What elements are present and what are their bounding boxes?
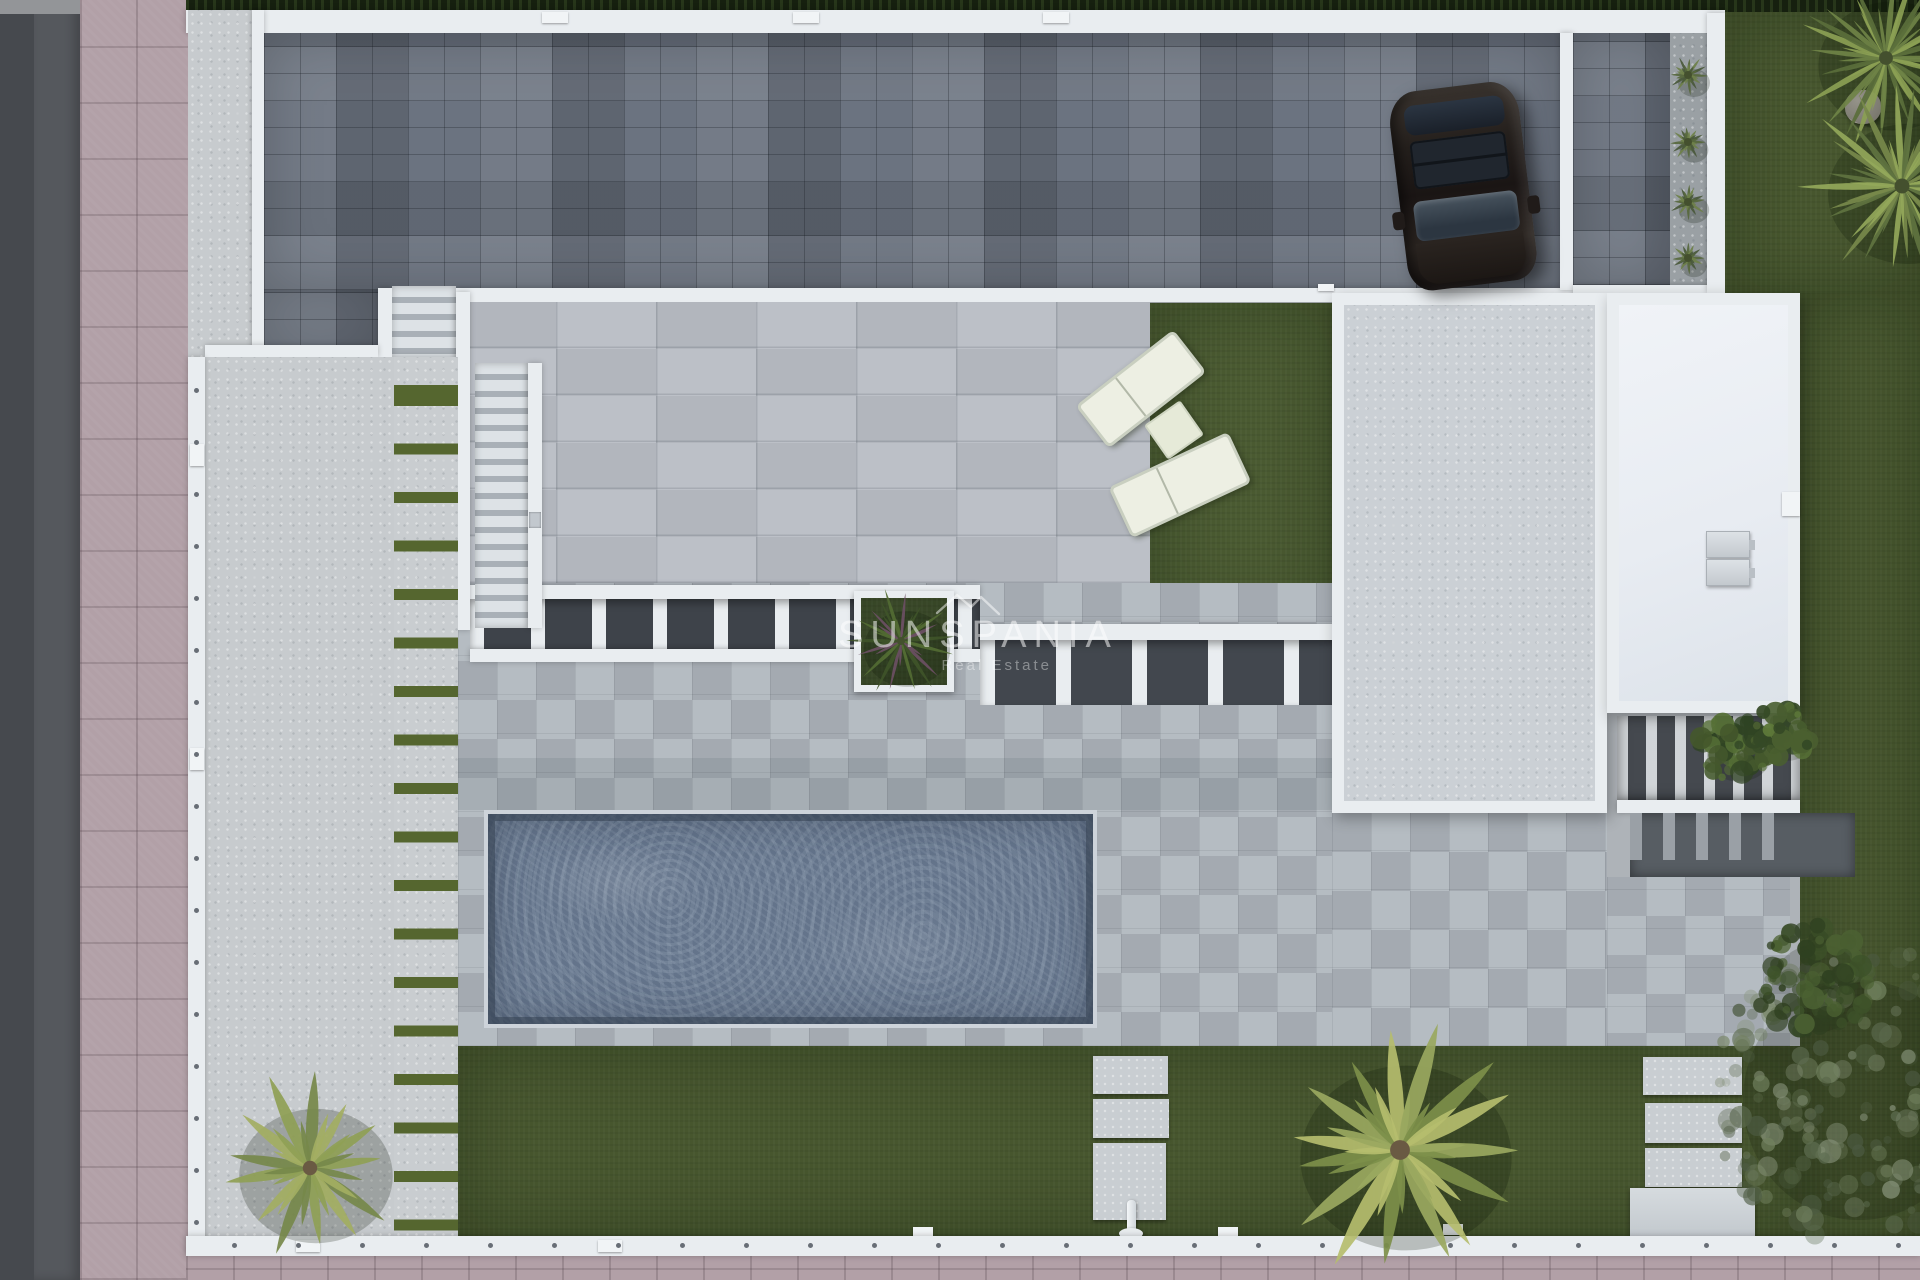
fence-post bbox=[744, 1243, 749, 1248]
fence-post bbox=[872, 1243, 877, 1248]
stairs-handle bbox=[529, 512, 541, 528]
driveway-pavers bbox=[264, 33, 1560, 290]
driveway-trim-left bbox=[205, 345, 378, 357]
stairs-driveway bbox=[392, 286, 456, 357]
pool-deck-right bbox=[1332, 813, 1607, 1046]
road-strip-dark bbox=[0, 0, 34, 1280]
ac-unit-1 bbox=[1706, 531, 1750, 558]
stepping-pad bbox=[1643, 1057, 1742, 1095]
fence-post bbox=[616, 1243, 621, 1248]
terrace-left-wall bbox=[456, 292, 470, 630]
stepping-pad bbox=[1093, 1056, 1168, 1094]
lounger-seam bbox=[1115, 378, 1146, 417]
fence-post bbox=[194, 1064, 199, 1069]
fence-post bbox=[936, 1243, 941, 1248]
stepping-pad bbox=[1645, 1103, 1742, 1143]
fence-post bbox=[1896, 1243, 1901, 1248]
fence-post bbox=[1064, 1243, 1069, 1248]
fence-post bbox=[194, 1012, 199, 1017]
grate-slats-lower bbox=[1630, 813, 1780, 860]
sidewalk-pink-left bbox=[80, 0, 192, 1280]
lawn-right bbox=[1800, 293, 1920, 1236]
boundary-wall-bottom bbox=[186, 1236, 1920, 1256]
fence-post bbox=[194, 648, 199, 653]
planter-strip-gravel bbox=[1670, 33, 1707, 285]
car-mirror-left bbox=[1392, 211, 1406, 230]
wall-step-cap bbox=[1443, 1224, 1463, 1235]
fence-post bbox=[194, 388, 199, 393]
driveway-stairs-wall bbox=[378, 288, 392, 357]
grate-patio-upper bbox=[1617, 716, 1800, 800]
fence-post bbox=[232, 1243, 237, 1248]
aerial-villa-render: SUNSPANIA Real Estate bbox=[0, 0, 1920, 1280]
pergola-planter-grass bbox=[861, 598, 947, 685]
fence-post bbox=[1448, 1243, 1453, 1248]
fence-post bbox=[194, 1220, 199, 1225]
parked-suv bbox=[1386, 79, 1539, 293]
wall-cap bbox=[1318, 284, 1334, 291]
fence-post bbox=[194, 440, 199, 445]
wall-cap bbox=[793, 12, 819, 23]
pergola-right-slats bbox=[980, 640, 1345, 705]
entry-walk-edge bbox=[252, 10, 264, 358]
fence-post bbox=[194, 596, 199, 601]
fence-post bbox=[194, 1168, 199, 1173]
fence-post bbox=[194, 804, 199, 809]
pool-deck-far-right bbox=[1607, 877, 1790, 1046]
fence-post bbox=[1192, 1243, 1197, 1248]
lounger-seam bbox=[1156, 468, 1179, 514]
road-top-edge bbox=[0, 0, 80, 14]
lawn-top-right bbox=[1725, 12, 1920, 293]
fence-post bbox=[552, 1243, 557, 1248]
fence-post bbox=[424, 1243, 429, 1248]
striped-strip-grass-bars bbox=[394, 357, 458, 1240]
wall-cap bbox=[1043, 12, 1069, 23]
garage-roof-surface bbox=[1619, 305, 1788, 701]
fence-post bbox=[194, 752, 199, 757]
fence-post bbox=[1384, 1243, 1389, 1248]
boundary-wall-top bbox=[186, 10, 1725, 33]
car-mirror-right bbox=[1527, 195, 1541, 214]
gate-hinge bbox=[190, 444, 204, 466]
fence-post bbox=[1768, 1243, 1773, 1248]
driveway-pavers-extension bbox=[264, 290, 378, 347]
fence-post bbox=[1832, 1243, 1837, 1248]
fence-post bbox=[194, 1116, 199, 1121]
grate-band bbox=[1617, 800, 1800, 813]
fence-post bbox=[1256, 1243, 1261, 1248]
fence-post bbox=[1128, 1243, 1133, 1248]
entry-walk-concrete bbox=[188, 10, 252, 358]
ac-unit-2 bbox=[1706, 559, 1750, 586]
fence-post bbox=[680, 1243, 685, 1248]
fence-post bbox=[808, 1243, 813, 1248]
stairs-side-wall bbox=[528, 363, 542, 628]
fence-post bbox=[1000, 1243, 1005, 1248]
fence-post bbox=[296, 1243, 301, 1248]
planter-box bbox=[1630, 1188, 1755, 1238]
fence-post bbox=[1320, 1243, 1325, 1248]
fence-post bbox=[488, 1243, 493, 1248]
fence-post bbox=[1704, 1243, 1709, 1248]
fence-post bbox=[360, 1243, 365, 1248]
boundary-wall-right-top bbox=[1707, 13, 1725, 293]
fence-post bbox=[194, 700, 199, 705]
fence-post bbox=[1640, 1243, 1645, 1248]
road-strip bbox=[34, 0, 80, 1280]
sidewalk-pink-bottom bbox=[186, 1254, 1920, 1280]
stepping-pad bbox=[1093, 1099, 1169, 1138]
driveway-divider bbox=[1560, 33, 1573, 290]
fence-post bbox=[1512, 1243, 1517, 1248]
stepping-pad bbox=[1645, 1148, 1742, 1187]
side-patio-pavers bbox=[1573, 33, 1670, 285]
fence-post bbox=[194, 908, 199, 913]
deck-shadow-row bbox=[458, 758, 1332, 810]
fence-post bbox=[194, 492, 199, 497]
fence-post bbox=[194, 960, 199, 965]
fence-post bbox=[194, 856, 199, 861]
fence-post bbox=[194, 544, 199, 549]
garden-rock bbox=[1845, 90, 1881, 124]
villa-roof-surface bbox=[1344, 305, 1595, 801]
roof-bracket bbox=[1782, 492, 1800, 516]
swimming-pool bbox=[484, 810, 1097, 1028]
pergola-right-top-rail bbox=[980, 624, 1345, 640]
fence-post bbox=[1576, 1243, 1581, 1248]
stairs-terrace bbox=[475, 363, 528, 628]
main-terrace bbox=[456, 302, 1150, 583]
wall-cap bbox=[542, 12, 568, 23]
concrete-side-pad bbox=[205, 357, 394, 1240]
